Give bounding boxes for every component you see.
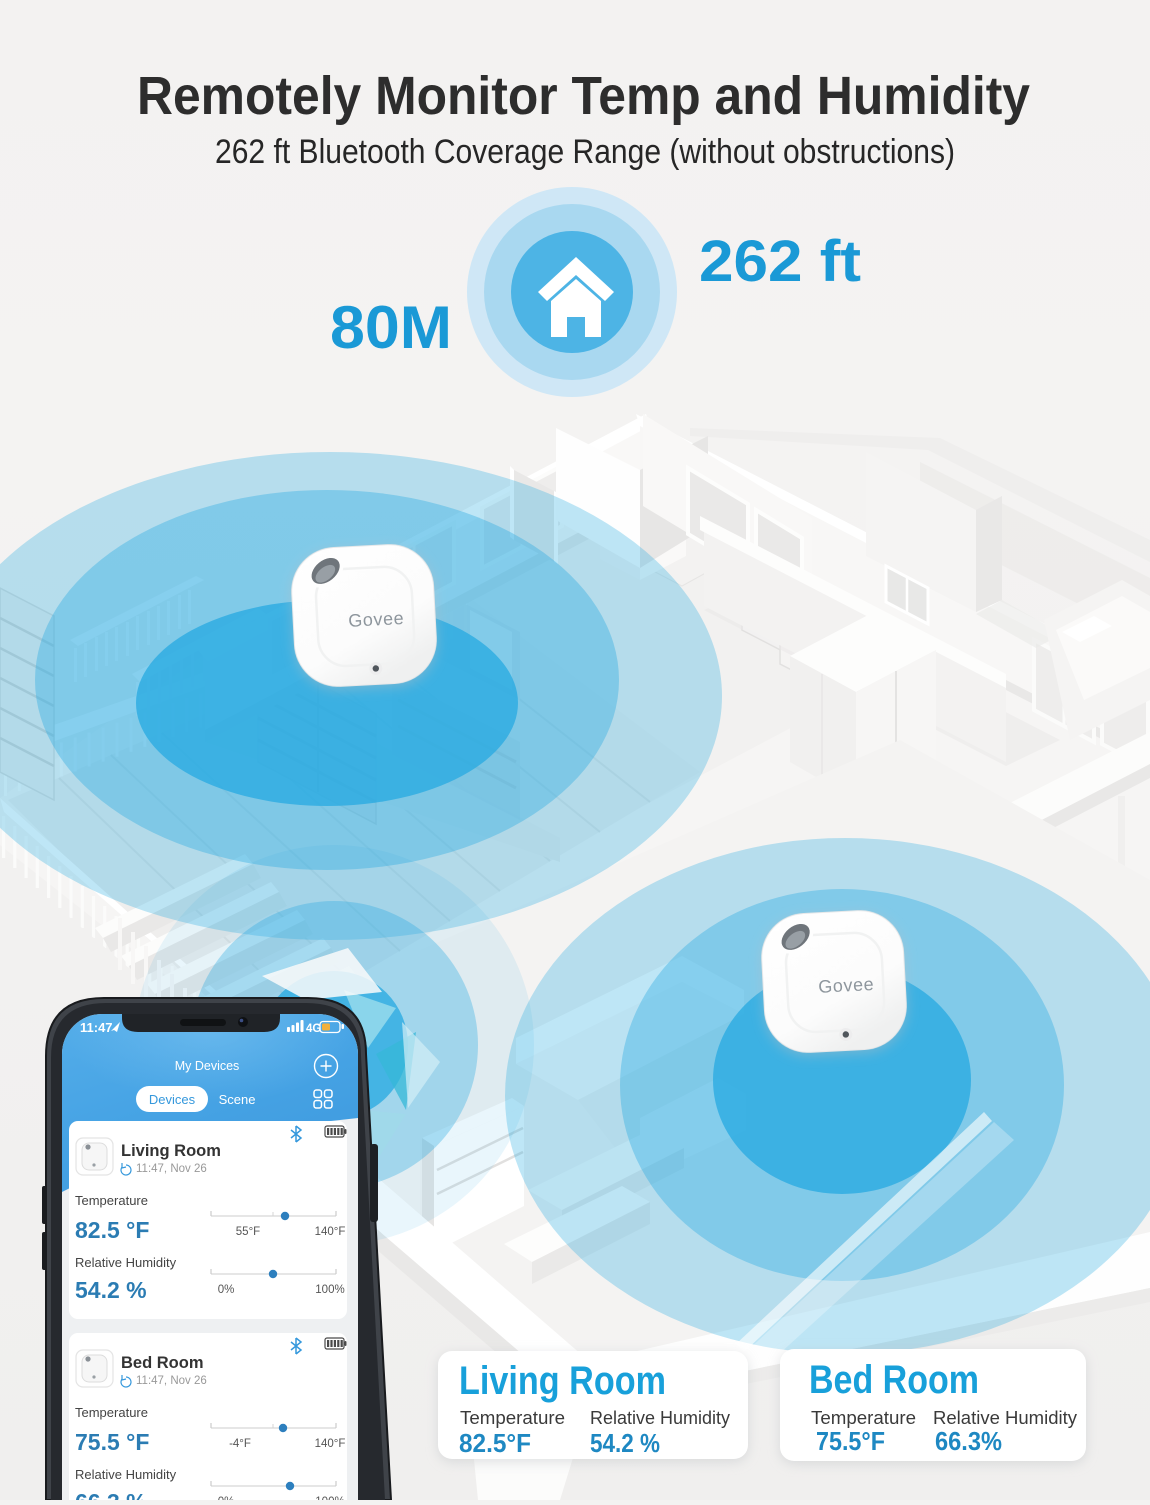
svg-text:Living Room: Living Room [459, 1359, 666, 1403]
svg-text:Temperature: Temperature [75, 1405, 148, 1420]
svg-text:75.5°F: 75.5°F [816, 1426, 885, 1456]
svg-text:Remotely Monitor Temp and Humi: Remotely Monitor Temp and Humidity [137, 66, 1030, 126]
svg-text:55°F: 55°F [236, 1226, 260, 1238]
svg-text:100%: 100% [315, 1284, 344, 1296]
svg-text:Relative Humidity: Relative Humidity [590, 1408, 730, 1428]
svg-text:100%: 100% [315, 1496, 344, 1500]
svg-text:Temperature: Temperature [811, 1408, 916, 1428]
svg-text:75.5 °F: 75.5 °F [75, 1429, 149, 1455]
svg-text:Relative Humidity: Relative Humidity [75, 1255, 177, 1270]
svg-text:Scene: Scene [219, 1092, 256, 1107]
svg-text:Devices: Devices [149, 1092, 196, 1107]
svg-text:80M: 80M [330, 294, 452, 361]
svg-text:11:47: 11:47 [80, 1020, 113, 1035]
svg-text:140°F: 140°F [315, 1226, 346, 1238]
svg-text:82.5°F: 82.5°F [459, 1428, 531, 1458]
svg-text:Bed Room: Bed Room [809, 1358, 979, 1402]
svg-text:Temperature: Temperature [75, 1193, 148, 1208]
svg-text:11:47, Nov 26: 11:47, Nov 26 [136, 1375, 207, 1387]
svg-text:262 ft: 262 ft [699, 229, 861, 294]
svg-text:Bed Room: Bed Room [121, 1354, 204, 1372]
svg-text:Relative Humidity: Relative Humidity [933, 1408, 1077, 1428]
svg-text:0%: 0% [218, 1284, 235, 1296]
svg-text:Relative Humidity: Relative Humidity [75, 1467, 177, 1482]
svg-text:Govee: Govee [818, 974, 875, 997]
svg-text:66.3%: 66.3% [935, 1426, 1002, 1456]
svg-text:Temperature: Temperature [460, 1408, 565, 1428]
svg-text:54.2 %: 54.2 % [590, 1428, 660, 1458]
svg-text:My Devices: My Devices [175, 1059, 240, 1073]
svg-text:4G: 4G [306, 1023, 321, 1035]
svg-text:262 ft Bluetooth Coverage Rang: 262 ft Bluetooth Coverage Range (without… [215, 133, 955, 171]
svg-text:-4°F: -4°F [229, 1438, 251, 1450]
svg-text:11:47, Nov 26: 11:47, Nov 26 [136, 1163, 207, 1175]
svg-text:Living Room: Living Room [121, 1142, 221, 1160]
svg-text:66.3 %: 66.3 % [75, 1489, 147, 1500]
svg-text:Govee: Govee [348, 608, 405, 631]
svg-text:0%: 0% [218, 1496, 235, 1500]
svg-text:54.2 %: 54.2 % [75, 1277, 147, 1303]
svg-text:82.5 °F: 82.5 °F [75, 1217, 149, 1243]
svg-text:140°F: 140°F [315, 1438, 346, 1450]
